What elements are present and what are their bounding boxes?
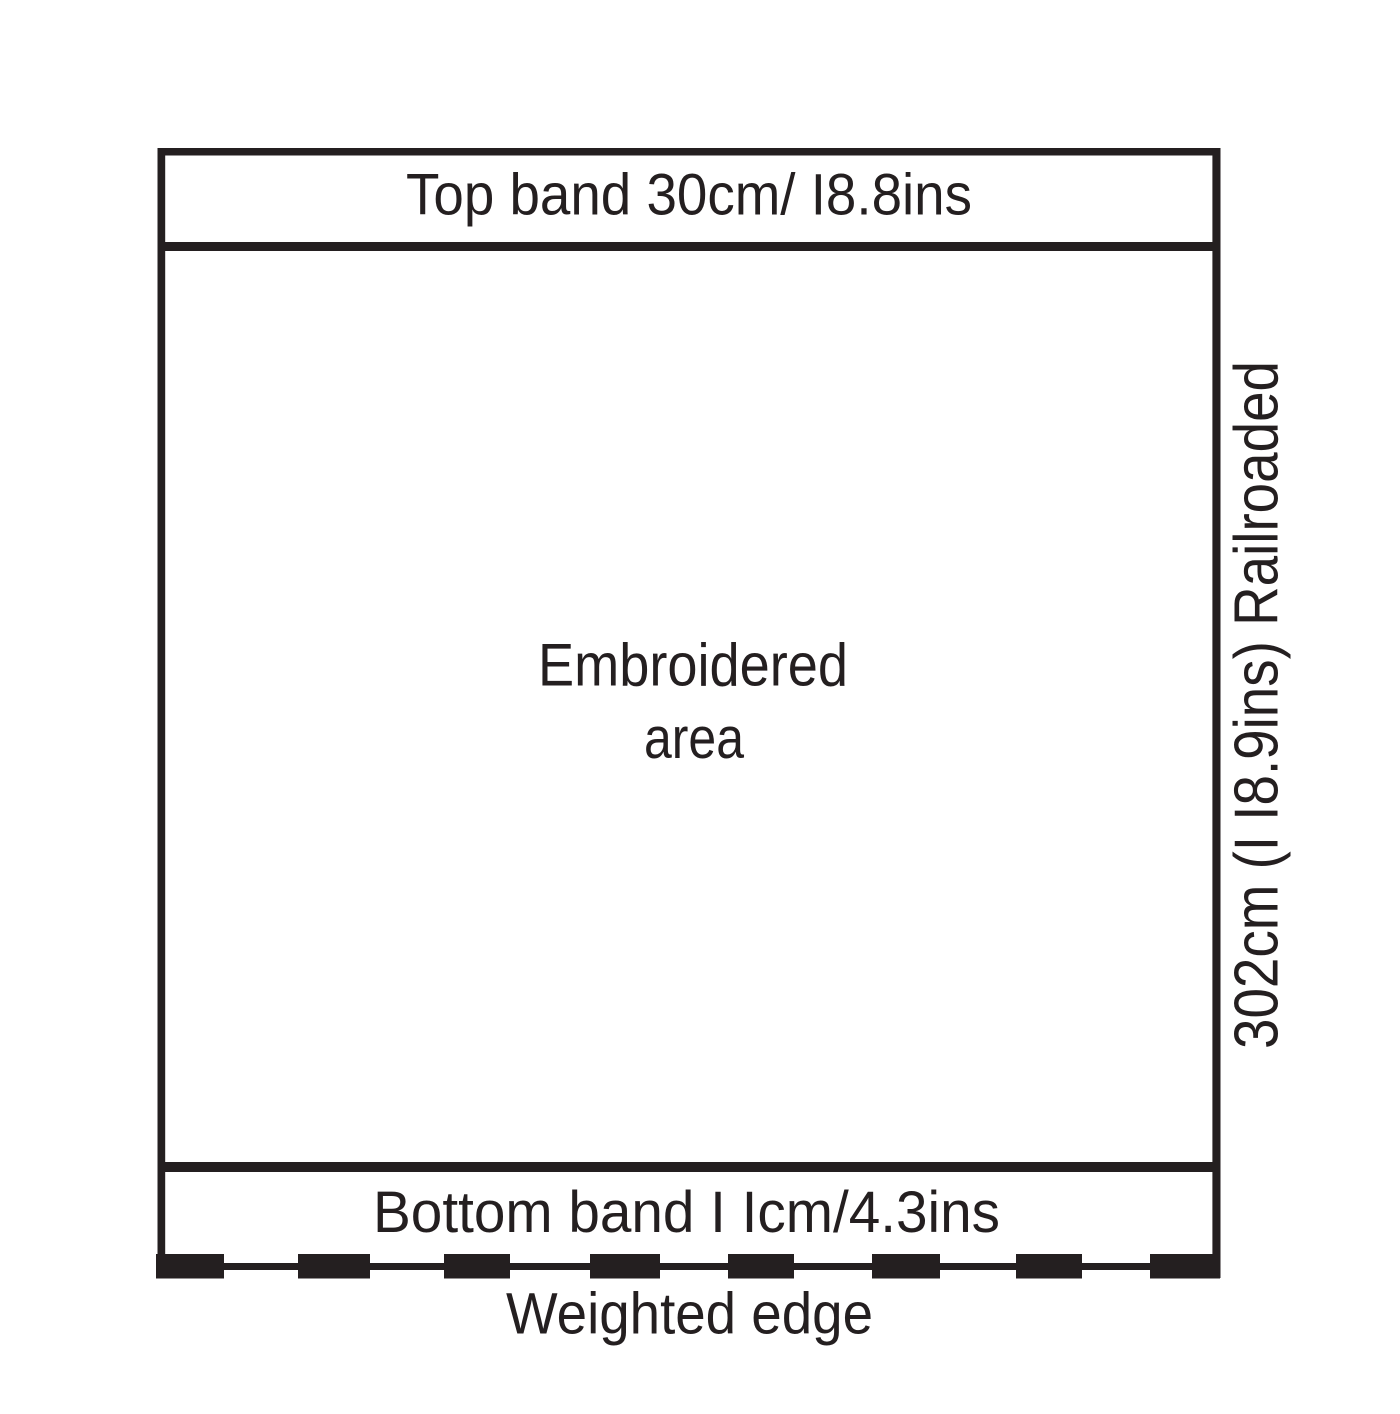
svg-text:Bottom band I Icm/4.3ins: Bottom band I Icm/4.3ins xyxy=(373,1180,1000,1245)
svg-text:Top band 30cm/ I8.8ins: Top band 30cm/ I8.8ins xyxy=(406,163,972,228)
svg-text:302cm (I I8.9ins) Railroaded: 302cm (I I8.9ins) Railroaded xyxy=(1223,361,1292,1049)
svg-text:Embroidered: Embroidered xyxy=(538,632,848,699)
svg-text:area: area xyxy=(644,706,745,771)
svg-text:Weighted edge: Weighted edge xyxy=(506,1282,873,1347)
